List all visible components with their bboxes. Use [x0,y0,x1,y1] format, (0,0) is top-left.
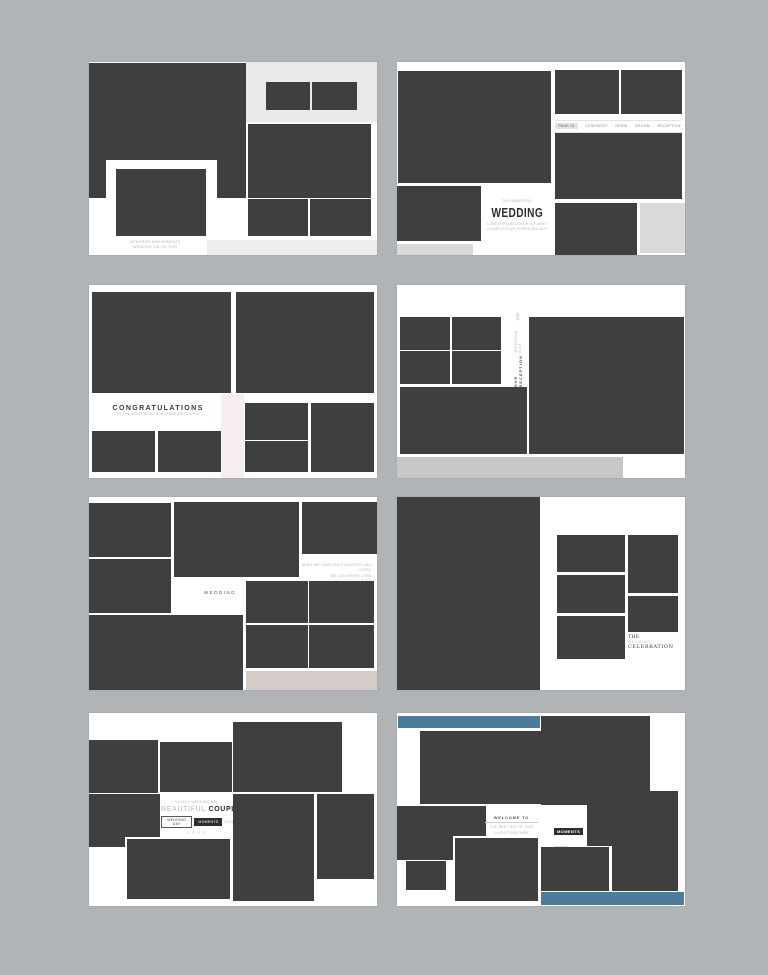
photo-placeholder [557,535,625,573]
photo-placeholder [400,387,527,454]
photo-placeholder [621,70,682,114]
title-text: WEDDING [490,205,545,220]
photo-placeholder [92,292,231,393]
photo-placeholder [555,203,637,255]
vertical-title: OUR RECEPTION [513,355,523,387]
photo-placeholder [236,292,374,393]
gray-block [640,203,685,253]
vertical-subtitle: WEDDING DAY [514,329,522,352]
photo-placeholder [557,616,625,659]
footer-strip [397,244,473,255]
templates-sheet: MEMORIES AND MOMENTS WEDDING COLLECTION … [0,0,768,975]
photo-placeholder [397,186,481,241]
chip-row: WEDDING DAY MOMENTS 2023 [161,816,233,828]
mauve-accent-strip [246,671,377,690]
menu-item: RECEPTION [658,124,681,128]
caption-strip: PAGE 01 CEREMONY BRIDE GROOM RECEPTION [555,120,680,133]
photo-placeholder [628,535,678,594]
photo-placeholder [89,740,158,793]
photo-placeholder [398,71,551,183]
photo-placeholder [311,403,374,472]
photo-placeholder [158,431,221,472]
album-template-3[interactable]: CONGRATULATIONS TO THE MOST BEAUTIFUL MA… [89,285,377,478]
chip-outline: WEDDING DAY [161,816,192,828]
photo-placeholder [233,722,342,792]
photo-placeholder [612,844,678,890]
subtitle-text: TO THE MOST BEAUTIFUL MARRIED COUPLE [109,412,207,418]
title-text: BEAUTIFUL COUPLE [161,806,233,813]
vertical-year: 2023 [516,313,520,321]
photo-placeholder [400,317,450,350]
photo-placeholder [245,441,308,472]
vertical-title-block: OUR RECEPTION WEDDING DAY 2023 [508,318,528,387]
menu-item: BRIDE [615,124,627,128]
photo-placeholder [628,596,678,632]
photo-placeholder [248,199,308,236]
album-template-1[interactable]: MEMORIES AND MOMENTS WEDDING COLLECTION [89,62,377,255]
photo-placeholder [541,847,609,890]
photo-placeholder [233,794,314,901]
menu-item: GROOM [635,124,650,128]
photo-placeholder [587,791,678,846]
photo-placeholder [406,861,446,890]
photo-placeholder [420,731,541,803]
album-template-7[interactable]: LOVELY WEDDING DAY BEAUTIFUL COUPLE WEDD… [89,713,377,906]
caption-line: WEDDING COLLECTION [112,245,198,251]
photo-placeholder [248,124,371,198]
photo-placeholder [266,82,310,110]
title-light: BEAUTIFUL [161,806,206,813]
welcome-title: WELCOME TO [485,815,538,820]
caption-block: MEMORIES AND MOMENTS WEDDING COLLECTION [112,240,198,251]
photo-placeholder [529,317,683,454]
photo-placeholder [309,581,374,623]
photo-placeholder [174,502,299,577]
note-line: WHAT WE HAVE ONCE ENJOYED AND LOVED [291,563,372,574]
photo-placeholder [302,502,377,554]
photo-placeholder [452,317,501,350]
photo-placeholder [555,70,618,114]
pink-accent-band [221,394,244,478]
menu-item: PAGE 01 [555,123,577,129]
photo-placeholder [246,581,308,623]
divider-line [485,822,538,823]
subtitle-line: CONSECTETUR ADIPISCING ELIT [482,227,553,233]
blue-accent-strip [541,892,684,904]
moments-badge: MOMENTS [554,828,583,835]
album-template-2[interactable]: OUR BEAUTIFUL WEDDING LOREM IPSUM DOLOR … [397,62,685,255]
photo-placeholder [452,351,501,384]
album-template-6[interactable]: THE WEDDING CELEBRATION [397,497,685,690]
welcome-block: WELCOME TO THE BEST DAY OF OUR LIVES TOG… [485,815,538,836]
chip-solid: MOMENTS [194,818,222,826]
title-block: LOVELY WEDDING DAY BEAUTIFUL COUPLE WEDD… [161,800,233,837]
photo-placeholder [89,503,171,557]
photo-placeholder [400,351,450,384]
kicker-text: LOVELY WEDDING DAY [161,800,233,806]
photo-placeholder [310,199,371,236]
photo-placeholder [309,625,374,668]
title-line: CELEBRATION [628,644,683,650]
title-block: THE WEDDING CELEBRATION [628,635,683,650]
title-block: CONGRATULATIONS TO THE MOST BEAUTIFUL MA… [109,405,207,418]
photo-placeholder [555,133,682,199]
album-template-8[interactable]: WELCOME TO THE BEST DAY OF OUR LIVES TOG… [397,713,685,906]
footer-strip [207,240,377,255]
album-template-5[interactable]: WEDDING WHAT WE HAVE ONCE ENJOYED AND LO… [89,497,377,690]
photo-placeholder [453,836,539,904]
blue-accent-strip [398,716,539,729]
photo-placeholder [160,742,231,792]
menu-item: CEREMONY [585,124,608,128]
photo-placeholder [312,82,357,110]
title-text: CONGRATULATIONS [109,405,207,412]
title-block: OUR BEAUTIFUL WEDDING LOREM IPSUM DOLOR … [482,199,553,233]
photo-placeholder [245,403,308,441]
photo-placeholder [89,615,243,690]
photo-placeholder [125,837,232,902]
photo-placeholder [89,559,171,613]
photo-placeholder [317,794,375,879]
photo-placeholder [92,431,155,472]
album-template-4[interactable]: OUR RECEPTION WEDDING DAY 2023 [397,285,685,478]
footer-strip [397,457,623,478]
photo-placeholder [397,497,540,690]
photo-placeholder [116,169,206,236]
chip-after-text: 2023 [224,820,233,826]
photo-placeholder [246,625,308,668]
photo-placeholder [557,575,625,614]
